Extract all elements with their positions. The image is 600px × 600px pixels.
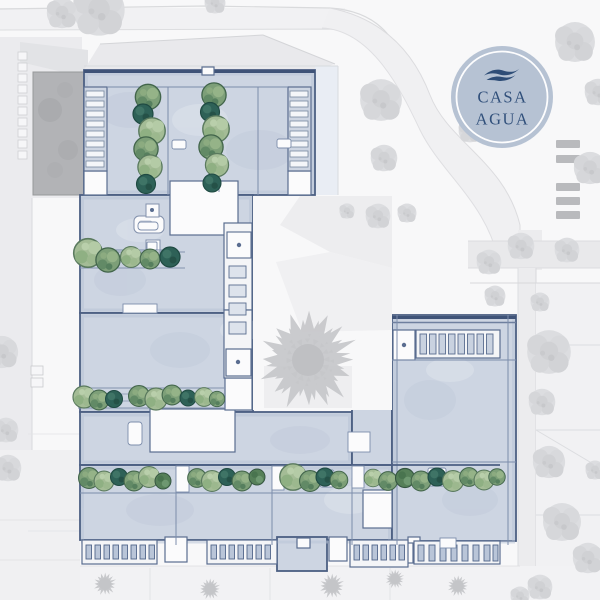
svg-text:CASA: CASA: [477, 88, 527, 107]
svg-text:AGUA: AGUA: [476, 110, 530, 129]
